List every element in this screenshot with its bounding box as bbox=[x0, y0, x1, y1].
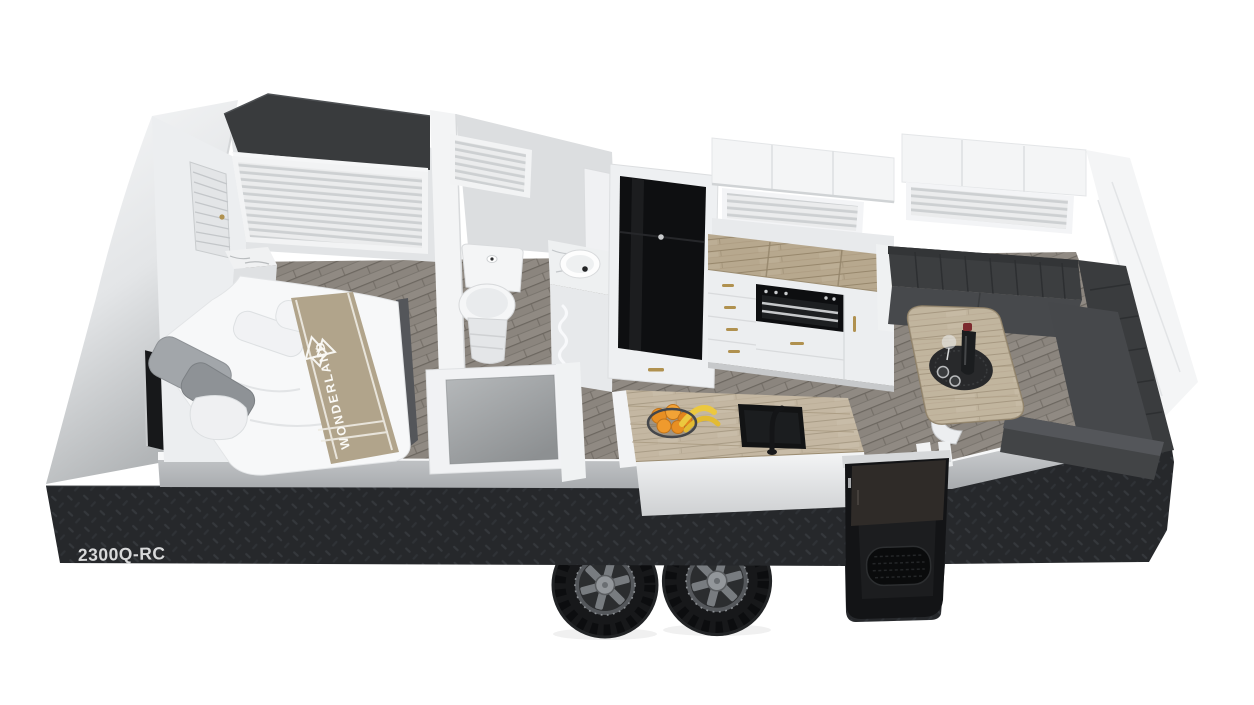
fridge-kick-handle bbox=[648, 368, 664, 372]
shower-tray bbox=[446, 375, 558, 464]
entry-door-step bbox=[842, 450, 951, 619]
island-bench bbox=[612, 390, 872, 516]
throw-blanket bbox=[190, 396, 247, 440]
model-code-label: 2300Q-RC bbox=[78, 543, 166, 565]
glass-base-2 bbox=[950, 376, 960, 386]
entry-step-tread bbox=[866, 546, 931, 586]
entry-door-panel bbox=[851, 460, 946, 526]
black-fridge-freezer bbox=[608, 164, 718, 388]
faucet-base bbox=[767, 449, 777, 455]
toilet-lid bbox=[466, 288, 508, 318]
caravan-floorplan-render: 2300Q-RC bbox=[0, 0, 1254, 705]
basin-bowl bbox=[566, 255, 594, 273]
island-front-face bbox=[636, 452, 872, 516]
bedside-table-top bbox=[225, 247, 277, 269]
toilet-pedestal bbox=[468, 318, 507, 364]
flush-button-dot bbox=[490, 257, 493, 260]
glass-base-1 bbox=[938, 367, 949, 378]
kitchen bbox=[708, 138, 894, 392]
door-hinge-mark bbox=[848, 478, 851, 488]
render-canvas: 2300Q-RC bbox=[0, 0, 1254, 705]
fridge-handle-dot bbox=[658, 234, 664, 240]
basin-drain bbox=[582, 266, 588, 272]
shower-recess bbox=[426, 362, 586, 482]
wardrobe-knob bbox=[219, 214, 224, 219]
